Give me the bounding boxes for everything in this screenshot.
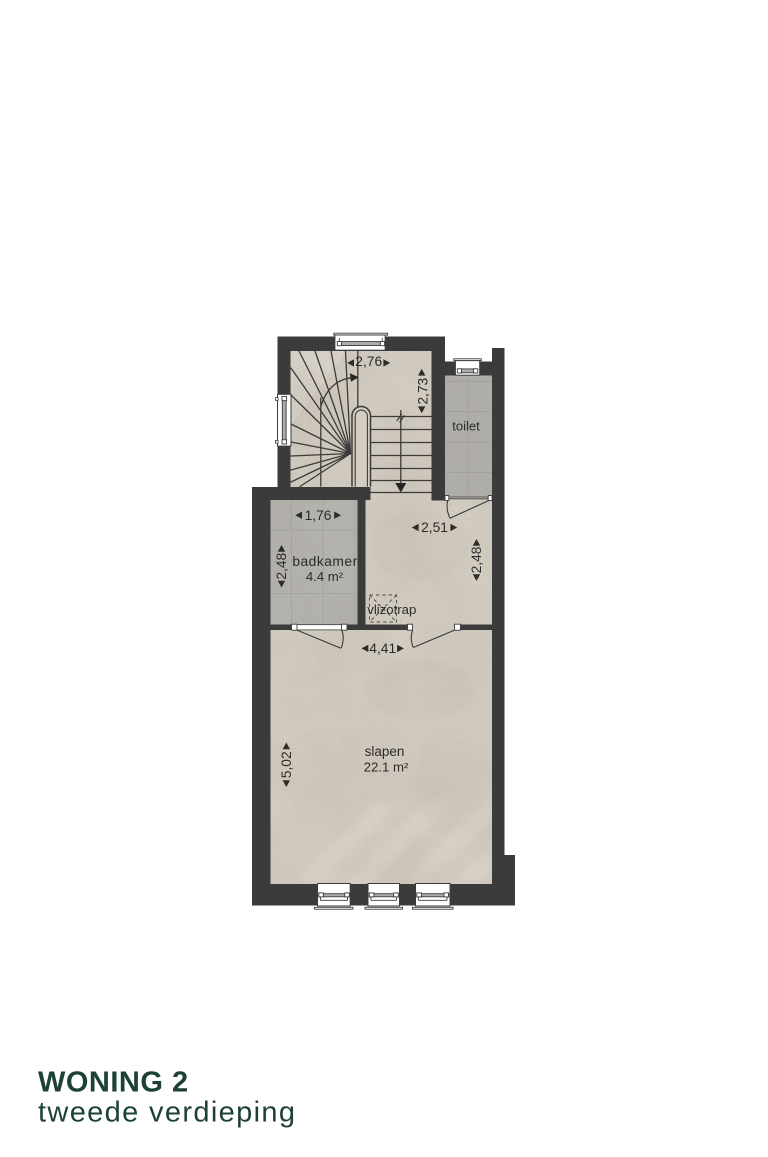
svg-text:vlizotrap: vlizotrap	[367, 602, 416, 617]
svg-text:2,48: 2,48	[274, 552, 289, 579]
svg-text:badkamer: badkamer	[292, 554, 357, 569]
svg-text:22.1 m²: 22.1 m²	[364, 760, 409, 775]
svg-text:4.4 m²: 4.4 m²	[306, 569, 344, 584]
svg-text:WONING 2: WONING 2	[38, 1067, 189, 1099]
svg-text:2,48: 2,48	[469, 546, 484, 573]
svg-text:1,76: 1,76	[305, 508, 332, 523]
svg-text:2,51: 2,51	[421, 520, 448, 535]
svg-text:4,41: 4,41	[369, 641, 396, 656]
svg-text:2,73: 2,73	[416, 377, 431, 404]
svg-text:toilet: toilet	[452, 419, 480, 434]
svg-text:5,02: 5,02	[279, 751, 294, 778]
svg-text:slapen: slapen	[365, 744, 405, 759]
svg-text:tweede verdieping: tweede verdieping	[38, 1097, 296, 1129]
svg-text:2,76: 2,76	[355, 354, 382, 369]
